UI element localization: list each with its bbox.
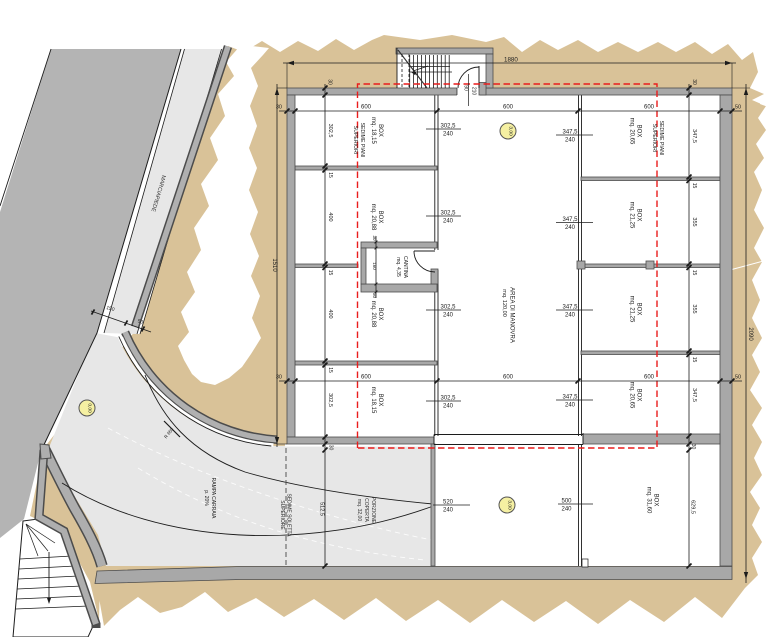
- svg-text:347,5: 347,5: [691, 129, 697, 143]
- svg-text:mq. 20,88: mq. 20,88: [370, 204, 376, 231]
- svg-text:160: 160: [372, 262, 377, 270]
- svg-text:600: 600: [361, 375, 372, 381]
- svg-text:15: 15: [691, 357, 697, 363]
- svg-text:240: 240: [443, 508, 454, 514]
- svg-text:mq. 32,00: mq. 32,00: [356, 499, 362, 521]
- svg-text:AREA DI MANOVRA: AREA DI MANOVRA: [509, 287, 515, 343]
- svg-text:3,00: 3,00: [508, 126, 514, 136]
- svg-text:mq. 21,25: mq. 21,25: [629, 202, 635, 229]
- svg-text:240: 240: [443, 219, 454, 225]
- svg-text:240: 240: [565, 138, 576, 144]
- svg-text:50: 50: [735, 105, 741, 111]
- svg-text:SUPERIORE: SUPERIORE: [279, 500, 285, 530]
- svg-text:p. 20%: p. 20%: [203, 490, 209, 506]
- svg-text:240: 240: [565, 403, 576, 409]
- svg-text:SUPERIORI: SUPERIORI: [352, 126, 358, 155]
- svg-text:240: 240: [443, 313, 454, 319]
- svg-text:30: 30: [690, 444, 696, 450]
- svg-text:BOX: BOX: [636, 209, 642, 222]
- svg-text:BOX: BOX: [636, 389, 642, 402]
- svg-text:355: 355: [691, 304, 697, 313]
- svg-text:30: 30: [691, 79, 697, 85]
- svg-text:3,00: 3,00: [507, 500, 513, 510]
- svg-text:BOX: BOX: [377, 211, 383, 224]
- svg-text:15: 15: [691, 183, 697, 189]
- svg-text:BOX: BOX: [377, 394, 383, 407]
- svg-text:15: 15: [327, 270, 333, 276]
- svg-text:RAMPA CARRAIA: RAMPA CARRAIA: [210, 478, 216, 519]
- svg-text:BOX: BOX: [377, 124, 383, 137]
- svg-text:0,00: 0,00: [87, 403, 93, 413]
- svg-text:347,5: 347,5: [562, 217, 578, 223]
- svg-text:1510: 1510: [271, 258, 277, 272]
- svg-text:347,5: 347,5: [562, 305, 578, 311]
- svg-text:302,5: 302,5: [327, 124, 333, 138]
- svg-text:600: 600: [361, 105, 372, 111]
- svg-text:15: 15: [691, 270, 697, 276]
- svg-text:30: 30: [276, 375, 282, 381]
- svg-text:mq. 4,35: mq. 4,35: [395, 257, 401, 277]
- svg-text:355: 355: [691, 217, 697, 226]
- svg-text:302,5: 302,5: [327, 393, 333, 407]
- svg-text:600: 600: [503, 105, 514, 111]
- svg-text:mq. 31,60: mq. 31,60: [646, 487, 652, 514]
- svg-text:240: 240: [565, 313, 576, 319]
- svg-text:mq. 20,65: mq. 20,65: [629, 118, 635, 145]
- svg-text:50: 50: [735, 375, 741, 381]
- svg-text:240: 240: [565, 225, 576, 231]
- svg-text:240: 240: [443, 404, 454, 410]
- svg-text:302,5: 302,5: [440, 124, 456, 130]
- svg-text:SEDIME PIANI: SEDIME PIANI: [658, 121, 664, 156]
- svg-text:mq. 20,65: mq. 20,65: [629, 382, 635, 409]
- svg-text:520: 520: [443, 500, 454, 506]
- svg-text:90: 90: [463, 85, 469, 91]
- svg-text:30: 30: [372, 293, 377, 299]
- svg-text:600: 600: [644, 375, 655, 381]
- svg-text:mq. 21,25: mq. 21,25: [629, 296, 635, 323]
- svg-text:400: 400: [327, 212, 333, 221]
- svg-text:mq. 20,88: mq. 20,88: [370, 301, 376, 328]
- svg-text:347,5: 347,5: [562, 130, 578, 136]
- svg-text:302,5: 302,5: [440, 211, 456, 217]
- svg-text:240: 240: [561, 507, 572, 513]
- svg-text:mq. 18,15: mq. 18,15: [370, 387, 376, 414]
- svg-text:2090: 2090: [747, 327, 753, 341]
- svg-text:BOX: BOX: [636, 125, 642, 138]
- svg-text:600: 600: [644, 105, 655, 111]
- svg-text:1880: 1880: [504, 57, 518, 64]
- svg-text:15: 15: [327, 172, 333, 178]
- svg-text:SUPERIORI: SUPERIORI: [651, 124, 657, 153]
- svg-text:30: 30: [372, 235, 377, 241]
- svg-text:400: 400: [327, 309, 333, 318]
- svg-text:SEDIME PIANI: SEDIME PIANI: [359, 123, 365, 158]
- svg-text:30: 30: [328, 445, 334, 451]
- svg-text:347,5: 347,5: [691, 388, 697, 402]
- svg-text:302,5: 302,5: [440, 396, 456, 402]
- svg-text:240: 240: [443, 132, 454, 138]
- svg-text:347,5: 347,5: [562, 395, 578, 401]
- svg-text:30: 30: [327, 79, 333, 85]
- svg-text:COPERTA: COPERTA: [363, 498, 369, 522]
- svg-text:629,5: 629,5: [690, 500, 696, 514]
- svg-text:30: 30: [276, 105, 282, 111]
- svg-text:BOX: BOX: [636, 303, 642, 316]
- svg-text:600: 600: [503, 375, 514, 381]
- svg-text:512,5: 512,5: [319, 502, 325, 516]
- svg-text:BOX: BOX: [653, 494, 659, 507]
- svg-text:PORZIONE: PORZIONE: [370, 497, 376, 524]
- svg-text:mq. 18,15: mq. 18,15: [370, 117, 376, 144]
- svg-text:CANTINA: CANTINA: [402, 256, 408, 279]
- svg-text:15: 15: [327, 367, 333, 373]
- svg-text:500: 500: [561, 499, 572, 505]
- svg-text:SEDIME SOLETTA: SEDIME SOLETTA: [285, 494, 291, 538]
- svg-text:302,5: 302,5: [440, 305, 456, 311]
- svg-text:mq. 120,00: mq. 120,00: [501, 289, 507, 317]
- svg-text:BOX: BOX: [377, 308, 383, 321]
- svg-text:210: 210: [471, 87, 477, 96]
